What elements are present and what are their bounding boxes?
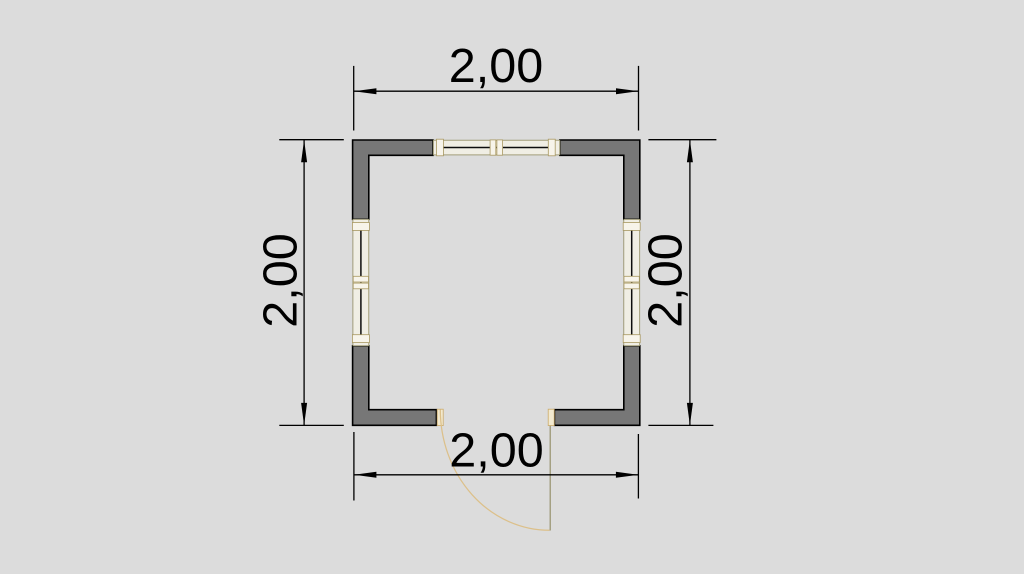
svg-text:2,00: 2,00 (639, 233, 693, 327)
svg-text:2,00: 2,00 (449, 423, 543, 477)
svg-text:2,00: 2,00 (254, 233, 308, 327)
svg-text:2,00: 2,00 (449, 39, 543, 93)
